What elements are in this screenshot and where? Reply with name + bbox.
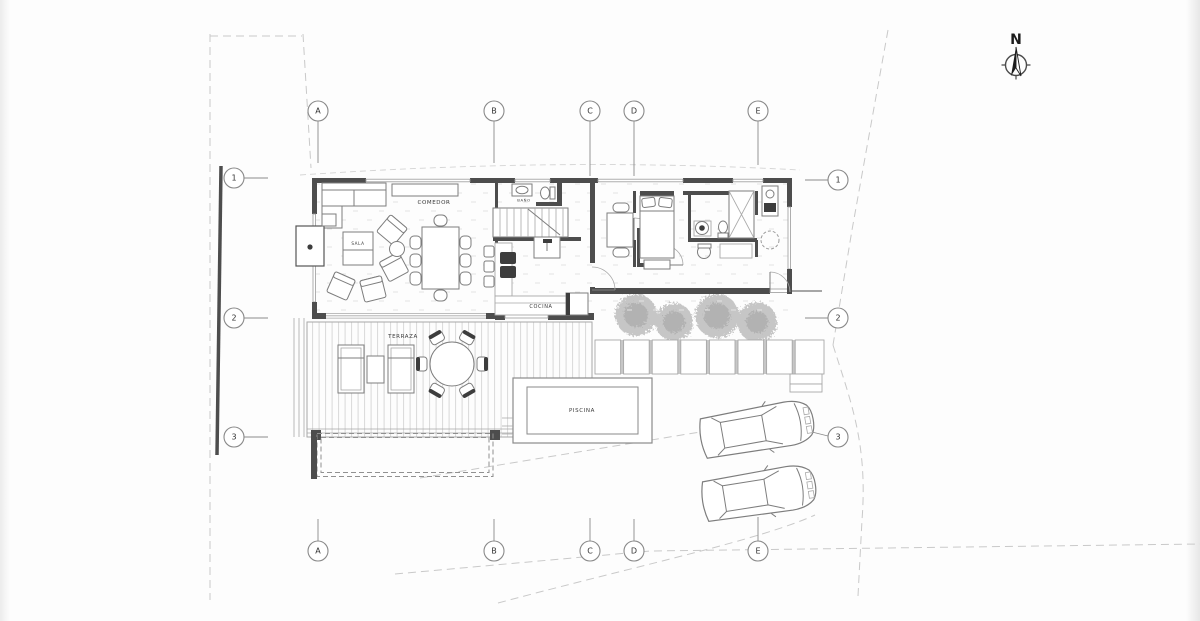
toilet (719, 221, 728, 233)
grid-label: C (587, 107, 593, 116)
roof-overhang-outline (311, 434, 493, 480)
dining-chair (460, 254, 471, 267)
dining-chair (434, 290, 447, 301)
chair (613, 248, 629, 257)
staircase (493, 208, 568, 237)
grid-bubble-3-right: 3 (828, 427, 848, 447)
grid-label: B (491, 547, 497, 556)
dining-chair (434, 215, 447, 226)
lounge-chair (388, 345, 414, 393)
grid-bubble-2-left: 2 (224, 308, 244, 328)
grid-bubble-C-bottom: C (580, 541, 600, 561)
chair (613, 203, 629, 212)
dining-chair (460, 272, 471, 285)
coffee-table (343, 232, 373, 265)
bed-bench (644, 260, 670, 269)
car (696, 394, 817, 465)
grid-bubble-B-bottom: B (484, 541, 504, 561)
bar-stool (484, 261, 494, 272)
grid-columns-top: A B C D E (308, 101, 768, 176)
grid-label: A (315, 107, 321, 116)
grid-bubble-1-left: 1 (224, 168, 244, 188)
grid-bubble-E-top: E (748, 101, 768, 121)
parked-cars (696, 394, 819, 528)
kitchen-label: COCINA (529, 304, 552, 310)
dining-chair (410, 254, 421, 267)
toilet (541, 187, 550, 199)
grid-label: 1 (835, 176, 840, 185)
dining-label: COMEDOR (418, 200, 451, 206)
headboard (640, 191, 674, 196)
bar-stool (484, 276, 494, 287)
bar-stool (484, 246, 494, 257)
grid-bubble-A-bottom: A (308, 541, 328, 561)
north-indicator: N (1002, 32, 1031, 80)
grid-bubble-E-bottom: E (748, 541, 768, 561)
grid-bubble-1-right: 1 (828, 170, 848, 190)
sofa (322, 183, 386, 190)
grid-bubble-D-top: D (624, 101, 644, 121)
grid-label: D (631, 547, 637, 556)
grid-columns-bottom: A B C D E (308, 517, 768, 561)
grid-label: 1 (231, 174, 236, 183)
dining-table (422, 227, 459, 289)
pool: PISCINA (502, 378, 652, 443)
bath-counter (720, 244, 752, 258)
grid-bubble-D-bottom: D (624, 541, 644, 561)
terrace-label: TERRAZA (387, 334, 418, 340)
north-label: N (1010, 32, 1022, 48)
desk (607, 213, 633, 247)
grid-label: 3 (231, 433, 236, 442)
dining-chair (410, 236, 421, 249)
grid-label: A (315, 547, 321, 556)
grid-label: E (755, 107, 760, 116)
grid-bubble-3-left: 3 (224, 427, 244, 447)
armchair (360, 276, 387, 303)
grid-bubble-2-right: 2 (828, 308, 848, 328)
grid-label: C (587, 547, 593, 556)
grid-label: 2 (835, 314, 840, 323)
bedroom (607, 191, 674, 269)
grid-bubble-B-top: B (484, 101, 504, 121)
sideboard (392, 184, 458, 196)
grid-bubble-A-top: A (308, 101, 328, 121)
side-table-round (390, 242, 405, 257)
architectural-plan-page: A B C D E A B C D E 1 2 3 1 2 3 (0, 0, 1200, 621)
north-arrow-icon (1002, 47, 1031, 80)
stove (500, 252, 516, 264)
car (699, 459, 820, 528)
living-label: SALA (351, 241, 364, 246)
pool-label: PISCINA (569, 408, 595, 414)
lounge-chair (338, 345, 364, 393)
side-table (367, 356, 384, 383)
grid-label: 2 (231, 314, 236, 323)
site-wall-line (217, 166, 221, 455)
floor-plan-canvas: A B C D E A B C D E 1 2 3 1 2 3 (0, 0, 1200, 621)
grid-label: 3 (835, 433, 840, 442)
grid-label: B (491, 107, 497, 116)
dining-chair (410, 272, 421, 285)
grid-label: E (755, 547, 760, 556)
dining-chair (460, 236, 471, 249)
grid-label: D (631, 107, 637, 116)
grid-bubble-C-top: C (580, 101, 600, 121)
bath-label: BAÑO (517, 198, 530, 203)
